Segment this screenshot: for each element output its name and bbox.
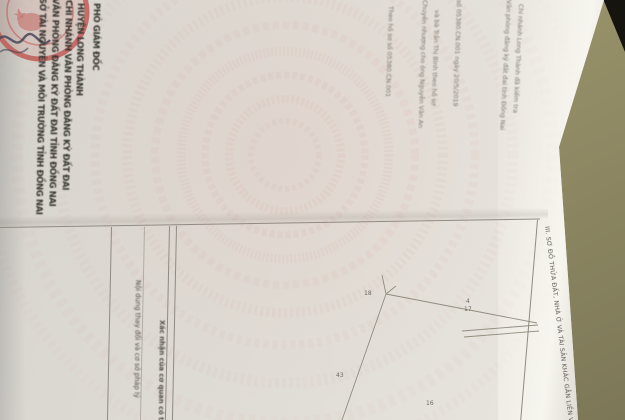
- stamp-text-line: HUYỆN LONG THÀNH: [74, 3, 84, 96]
- photo-of-land-certificate: SỞ TÀI NGUYÊN VÀ MÔI TRƯỜNG TỈNH ĐỒNG NA…: [0, 0, 625, 420]
- vertex-label: 4: [466, 298, 470, 305]
- vertex-label: 43: [336, 372, 344, 379]
- corner-shadow: [600, 0, 625, 52]
- certificate-paper: SỞ TÀI NGUYÊN VÀ MÔI TRƯỜNG TỈNH ĐỒNG NA…: [0, 0, 625, 420]
- vertex-label: 16: [426, 400, 434, 407]
- table-col2-header: Xác nhận của cơ quan có thẩm quyền: [156, 320, 165, 420]
- vertex-label: 18: [364, 290, 372, 297]
- vertex-label: 17: [464, 306, 472, 313]
- stamp-text-line: PHÓ GIÁM ĐỐC: [90, 3, 100, 71]
- parcel-sketch: 18 4 17 43 16: [320, 255, 620, 420]
- table-col1-header: Nội dung thay đổi và cơ sở pháp lý: [133, 280, 141, 398]
